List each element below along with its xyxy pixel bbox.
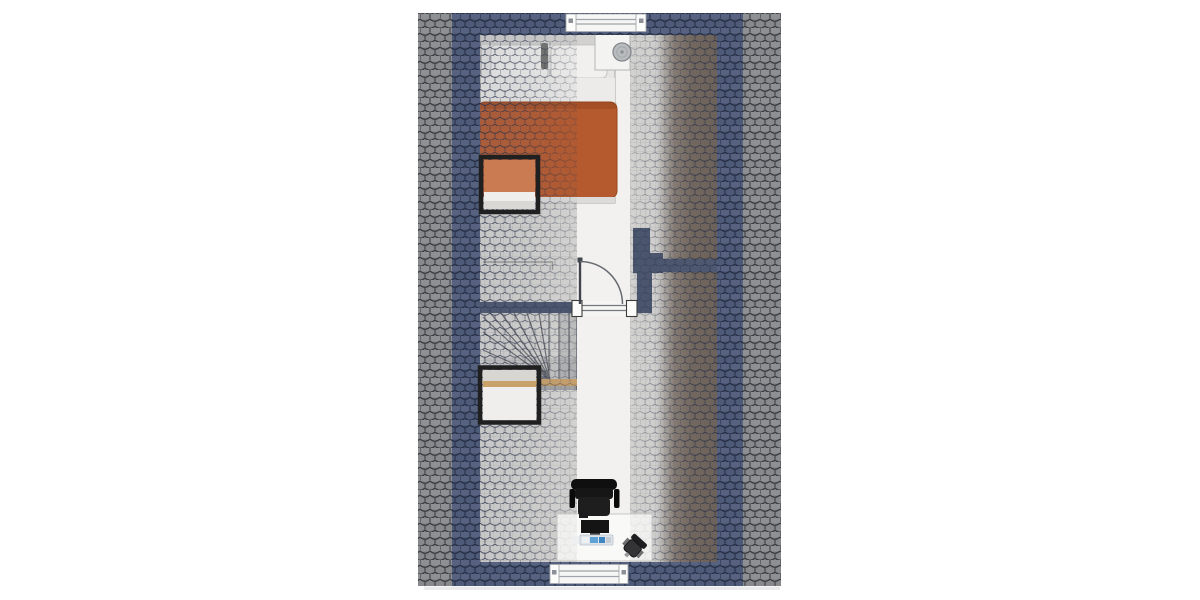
- keyboard-key-block-4: [606, 537, 611, 543]
- keyboard-key-block-3: [599, 537, 605, 543]
- rear-window-frame: [550, 565, 628, 584]
- floor-plan-canvas: [0, 0, 1200, 600]
- rear-window-latch-right: [622, 570, 627, 575]
- floor-plan-page: [0, 0, 1200, 600]
- roof-window-bedroom-floor-view: [484, 201, 535, 209]
- rear-window-latch-left: [552, 570, 557, 575]
- blue-roof-tiles-left: [452, 13, 480, 586]
- plan-drop-shadow: [424, 587, 780, 591]
- door-jamb-right: [627, 301, 638, 317]
- roof-window-stairs-rail-view: [483, 381, 536, 387]
- rear-window: [550, 565, 628, 584]
- keyboard-key-block-1: [582, 537, 589, 543]
- keyboard-key-block-2: [590, 537, 598, 543]
- gray-roof-tiles-left: [418, 13, 452, 586]
- blue-roof-tiles-right: [717, 13, 743, 586]
- gray-roof-tiles-right: [743, 13, 781, 586]
- roof-window-bedroom: [481, 157, 538, 212]
- roof-window-stairs: [480, 368, 539, 423]
- notepad: [573, 536, 579, 544]
- roof-window-stairs-top-view: [483, 370, 536, 381]
- roof-window-bedroom-duvet-view: [484, 160, 535, 192]
- front-window-frame: [566, 14, 646, 32]
- roof-overlay-left: [480, 35, 577, 562]
- smartphone: [579, 511, 588, 518]
- office-chair-armrest-right: [614, 489, 620, 508]
- front-window-latch-left: [569, 19, 574, 24]
- nightstand: [595, 34, 631, 70]
- monitor: [581, 520, 609, 533]
- roof-window-bedroom-sheet-view: [484, 192, 535, 201]
- front-window-latch-right: [639, 19, 644, 24]
- office-chair-armrest-left: [570, 489, 576, 508]
- keyboard: [580, 535, 613, 545]
- front-window: [566, 14, 646, 32]
- roof-overlay-right: [630, 35, 717, 562]
- basin-drain: [620, 50, 623, 53]
